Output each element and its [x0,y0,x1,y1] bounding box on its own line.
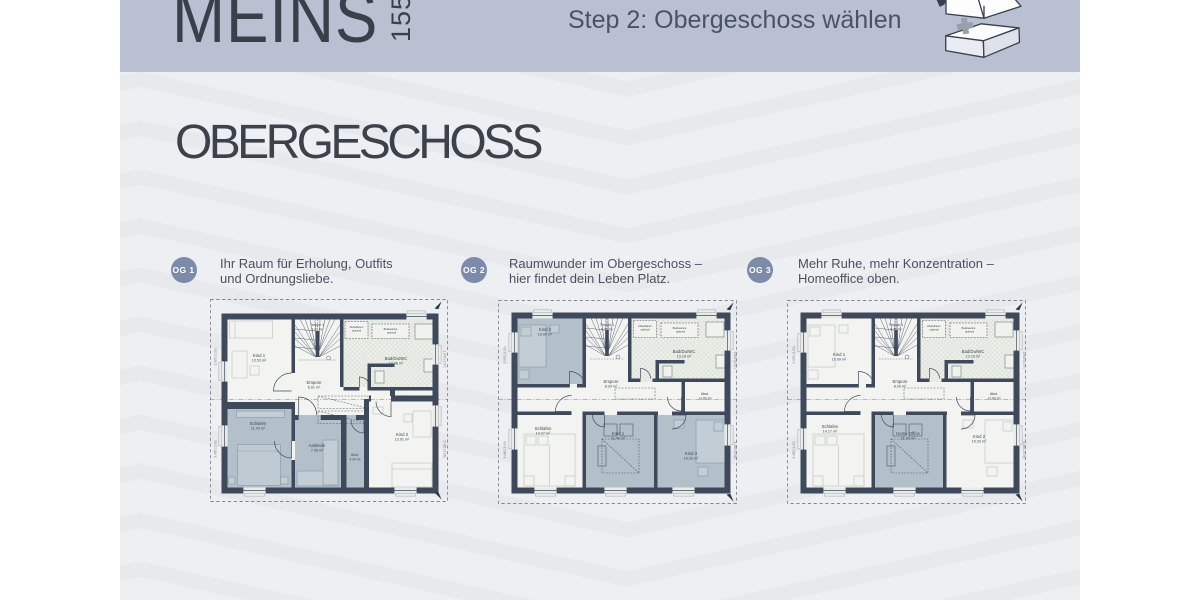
svg-text:Abstellraum: Abstellraum [349,325,363,329]
svg-text:Empore: Empore [892,379,908,384]
svg-text:optional: optional [675,329,685,333]
svg-text:+2.80 m²: +2.80 m² [698,396,712,400]
svg-text:Home Office: Home Office [896,431,920,436]
svg-text:Ankleide: Ankleide [308,443,325,448]
svg-text:+2.80 m²: +2.80 m² [987,397,1001,401]
svg-text:Abst.: Abst. [350,453,358,457]
svg-text:6.45 m²: 6.45 m² [890,328,902,332]
svg-text:10.09 m²: 10.09 m² [537,332,552,336]
svg-text:Bad/Du/WC: Bad/Du/WC [672,349,695,354]
svg-text:14.27 m²: 14.27 m² [535,431,550,435]
svg-text:8.39 m²: 8.39 m² [604,384,617,388]
svg-text:Treppe 1: Treppe 1 [889,323,903,327]
svg-text:3.485 (1.99): 3.485 (1.99) [503,441,507,458]
svg-text:10.33 m²: 10.33 m² [683,456,698,460]
svg-text:6.91 m²: 6.91 m² [307,385,320,389]
svg-text:13.91 m²: 13.91 m² [394,437,409,441]
svg-text:Abst.: Abst. [700,392,708,396]
svg-text:3.485 (1.99): 3.485 (1.99) [213,440,217,457]
svg-text:11.45 m²: 11.45 m² [901,437,916,441]
svg-text:Kind 1: Kind 1 [611,431,624,436]
svg-text:Schlafen: Schlafen [534,426,551,431]
svg-text:Bad/Du/WC: Bad/Du/WC [384,356,407,361]
svg-text:Badewanne: Badewanne [383,327,397,331]
svg-text:3.485 (3.98): 3.485 (3.98) [442,440,446,457]
svg-text:3.485 (1.99): 3.485 (1.99) [792,441,796,458]
svg-text:2.995 (1.99): 2.995 (1.99) [792,346,796,363]
svg-text:8.39 m²: 8.39 m² [894,385,907,389]
svg-text:Treppe 1: Treppe 1 [309,323,323,327]
svg-text:Kind 3: Kind 3 [684,451,697,456]
svg-text:Abst.: Abst. [990,392,998,396]
svg-text:Schlafen: Schlafen [822,424,839,429]
svg-text:13.19 m²: 13.19 m² [676,354,691,358]
svg-text:1.845 (4.57): 1.845 (4.57) [733,351,737,368]
svg-text:1.845 (4.57): 1.845 (4.57) [442,350,446,367]
svg-text:6.45 m²: 6.45 m² [601,327,613,331]
svg-text:optional: optional [351,328,361,332]
svg-text:Kind 1: Kind 1 [833,352,846,357]
svg-text:Schlafen: Schlafen [249,421,266,426]
svg-text:3.485 (3.98): 3.485 (3.98) [733,441,737,458]
svg-text:14.17 m²: 14.17 m² [823,430,838,434]
svg-text:14.88 m²: 14.88 m² [388,361,403,365]
svg-text:10.09 m²: 10.09 m² [832,358,847,362]
svg-text:Kind 1: Kind 1 [252,353,265,358]
svg-text:13.53 m²: 13.53 m² [251,358,266,362]
svg-text:Treppe 1: Treppe 1 [599,323,613,327]
svg-text:Badewanne: Badewanne [672,326,686,330]
svg-text:3.485 (3.98): 3.485 (3.98) [1022,441,1026,458]
svg-text:optional: optional [640,327,650,331]
svg-text:13.19 m²: 13.19 m² [966,355,981,359]
svg-text:10.33 m²: 10.33 m² [972,440,987,444]
svg-text:optional: optional [929,327,939,331]
svg-text:1.845 (4.57): 1.845 (4.57) [1022,351,1026,368]
svg-text:optional: optional [965,329,975,333]
svg-text:Kind 2: Kind 2 [973,434,986,439]
svg-text:Kind 2: Kind 2 [395,432,408,437]
svg-text:Badewanne: Badewanne [962,326,976,330]
svg-text:Empore: Empore [603,379,619,384]
svg-text:optional: optional [386,330,396,334]
svg-text:11.43 m²: 11.43 m² [250,426,265,430]
svg-text:4.34 m²: 4.34 m² [349,457,361,461]
svg-text:1.995 (1.99): 1.995 (1.99) [213,348,217,365]
svg-text:11.46 m²: 11.46 m² [610,436,625,440]
svg-text:2.995 (1.99): 2.995 (1.99) [503,346,507,363]
svg-text:Kind 2: Kind 2 [538,327,551,332]
svg-text:Abstellraum: Abstellraum [927,324,941,328]
svg-text:6.41 m²: 6.41 m² [311,327,323,331]
svg-text:Empore: Empore [306,380,322,385]
svg-text:Abstellraum: Abstellraum [638,324,652,328]
svg-text:7.08 m²: 7.08 m² [310,448,323,452]
svg-text:Bad/Du/WC: Bad/Du/WC [962,349,985,354]
